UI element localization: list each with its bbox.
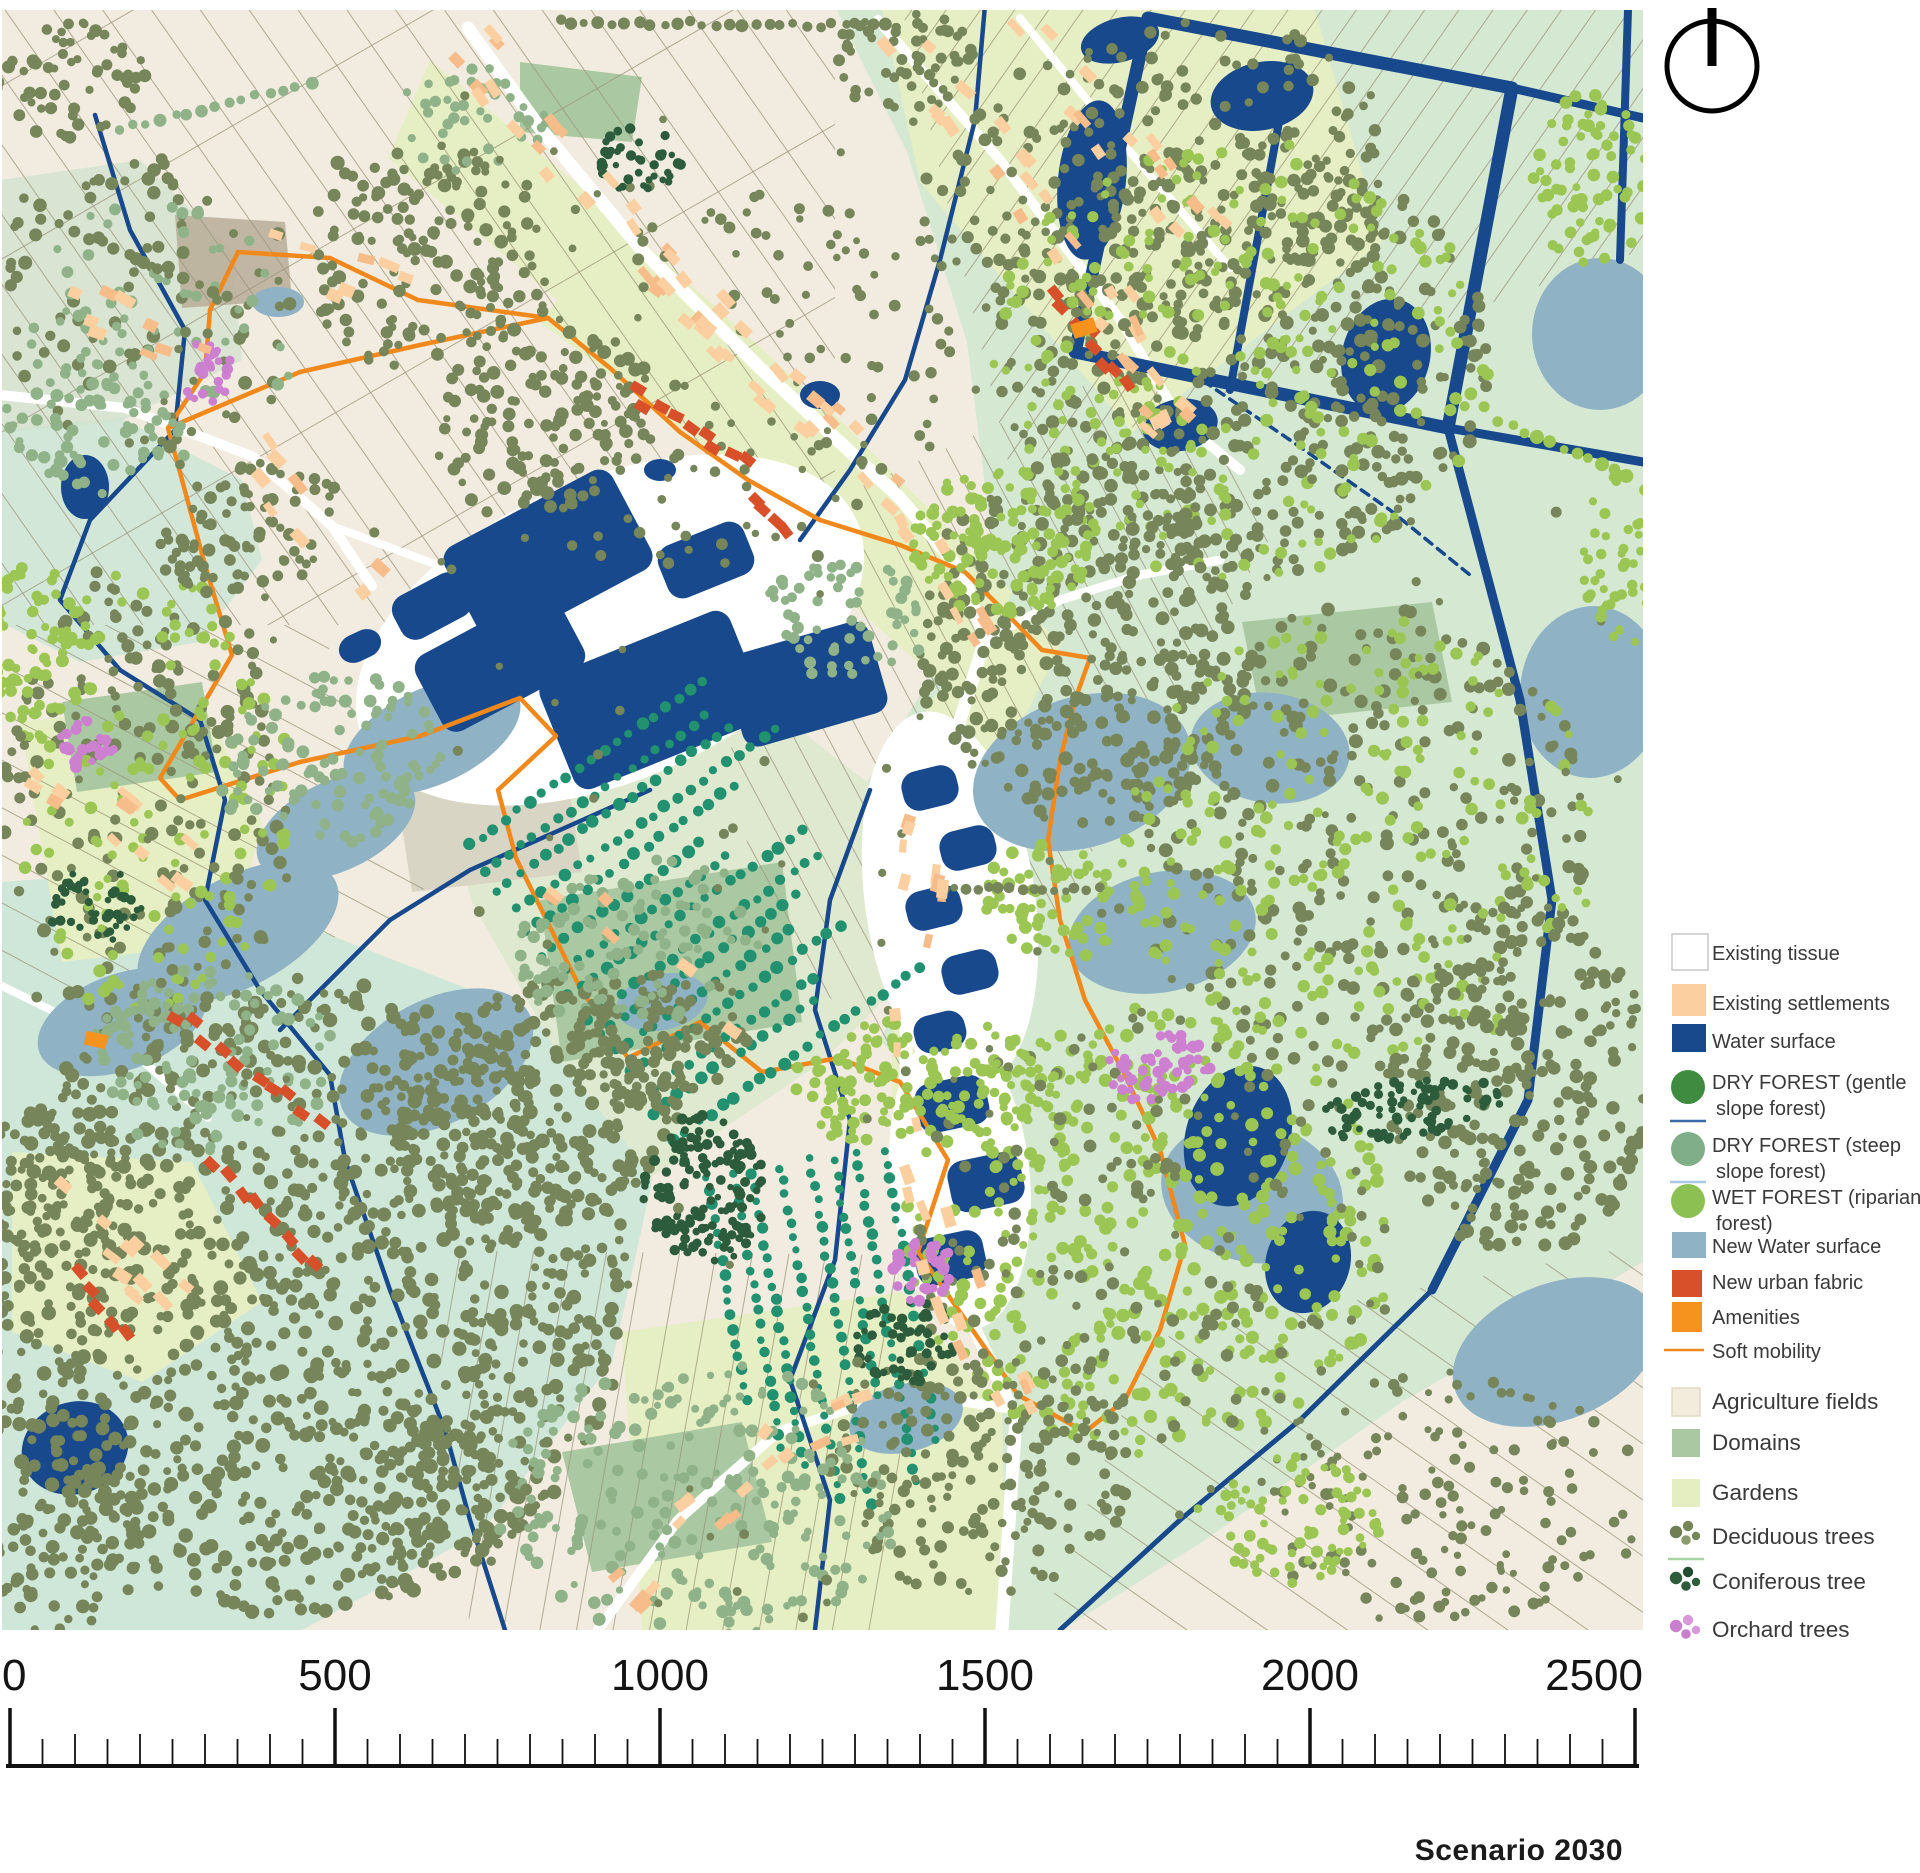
dry-forest-steep-label: DRY FOREST (steepslope forest): [1712, 1135, 1901, 1183]
deciduous-trees-icon: [1683, 1521, 1693, 1531]
orchard-trees-label: Orchard trees: [1712, 1617, 1850, 1642]
existing-settlements-swatch: [1672, 984, 1706, 1016]
scale-label: 2000: [1261, 1651, 1359, 1700]
coniferous-tree-icon: [1681, 1581, 1691, 1591]
legend-item-wet-forest: WET FOREST (riparianforest): [1671, 1184, 1920, 1235]
orchard-trees-icon: [1692, 1626, 1700, 1634]
legend-item-water-surface: Water surface: [1672, 1024, 1836, 1053]
legend-item-agriculture-fields: Agriculture fields: [1672, 1388, 1878, 1416]
deciduous-trees-icon: [1692, 1532, 1700, 1540]
coniferous-tree-icon: [1692, 1578, 1700, 1586]
legend: Existing tissueExisting settlementsWater…: [1664, 934, 1920, 1642]
scenario-title: Scenario 2030: [1415, 1834, 1623, 1868]
scale-label: 1000: [611, 1651, 709, 1700]
gardens-label: Gardens: [1712, 1480, 1798, 1505]
agriculture-fields-label: Agriculture fields: [1712, 1389, 1878, 1414]
legend-item-domains: Domains: [1672, 1429, 1801, 1457]
wet-forest-label: WET FOREST (riparianforest): [1712, 1187, 1920, 1235]
agriculture-fields-swatch: [1672, 1388, 1700, 1416]
coniferous-tree-icon: [1670, 1572, 1682, 1584]
orchard-trees-icon: [1681, 1629, 1691, 1639]
scale-label: 0: [2, 1651, 26, 1700]
amenities-swatch: [1672, 1302, 1702, 1332]
dry-forest-steep-swatch: [1671, 1132, 1705, 1166]
wet-forest-swatch: [1671, 1184, 1705, 1218]
new-urban-fabric-label: New urban fabric: [1712, 1272, 1863, 1294]
scale-bar: 05001000150020002500: [2, 1651, 1643, 1766]
water-surface-label: Water surface: [1712, 1031, 1836, 1053]
legend-item-gardens: Gardens: [1672, 1479, 1798, 1507]
legend-item-dry-forest-steep: DRY FOREST (steepslope forest): [1670, 1132, 1901, 1183]
dry-forest-gentle-label: DRY FOREST (gentleslope forest): [1712, 1072, 1907, 1120]
gardens-swatch: [1672, 1479, 1700, 1507]
north-arrow-icon: [1667, 8, 1757, 111]
map-canvas: 05001000150020002500Existing tissueExist…: [0, 0, 1920, 1873]
dry-forest-gentle-swatch: [1671, 1070, 1705, 1104]
legend-item-amenities: Amenities: [1672, 1302, 1800, 1332]
soft-mobility-label: Soft mobility: [1712, 1341, 1821, 1363]
map-layers: [0, 0, 1920, 1873]
water-surface-swatch: [1672, 1024, 1706, 1052]
deciduous-trees-icon: [1681, 1535, 1691, 1545]
legend-item-existing-tissue: Existing tissue: [1672, 934, 1840, 970]
orchard-trees-icon: [1683, 1615, 1693, 1625]
page: 05001000150020002500Existing tissueExist…: [0, 0, 1920, 1873]
legend-item-orchard-trees: Orchard trees: [1670, 1615, 1850, 1642]
coniferous-tree-icon: [1683, 1567, 1693, 1577]
legend-item-coniferous-tree: Coniferous tree: [1670, 1567, 1866, 1594]
amenities-label: Amenities: [1712, 1307, 1800, 1329]
coniferous-tree-label: Coniferous tree: [1712, 1569, 1866, 1594]
scale-label: 2500: [1545, 1651, 1643, 1700]
new-urban-fabric-swatch: [1672, 1270, 1702, 1297]
scale-label: 500: [298, 1651, 371, 1700]
new-water-surface-label: New Water surface: [1712, 1236, 1881, 1258]
existing-settlements-label: Existing settlements: [1712, 993, 1890, 1015]
existing-tissue-swatch: [1672, 934, 1708, 970]
existing-tissue-label: Existing tissue: [1712, 943, 1840, 965]
deciduous-trees-icon: [1670, 1526, 1682, 1538]
legend-item-existing-settlements: Existing settlements: [1672, 984, 1890, 1016]
legend-item-new-water-surface: New Water surface: [1672, 1232, 1881, 1258]
domains-swatch: [1672, 1429, 1700, 1457]
deciduous-trees-label: Deciduous trees: [1712, 1524, 1875, 1549]
legend-item-deciduous-trees: Deciduous trees: [1670, 1521, 1875, 1549]
legend-item-dry-forest-gentle: DRY FOREST (gentleslope forest): [1670, 1070, 1907, 1121]
legend-item-soft-mobility: Soft mobility: [1664, 1341, 1821, 1363]
new-water-surface-swatch: [1672, 1232, 1706, 1258]
scale-label: 1500: [936, 1651, 1034, 1700]
legend-item-new-urban-fabric: New urban fabric: [1672, 1270, 1863, 1297]
orchard-trees-icon: [1670, 1620, 1682, 1632]
domains-label: Domains: [1712, 1430, 1801, 1455]
